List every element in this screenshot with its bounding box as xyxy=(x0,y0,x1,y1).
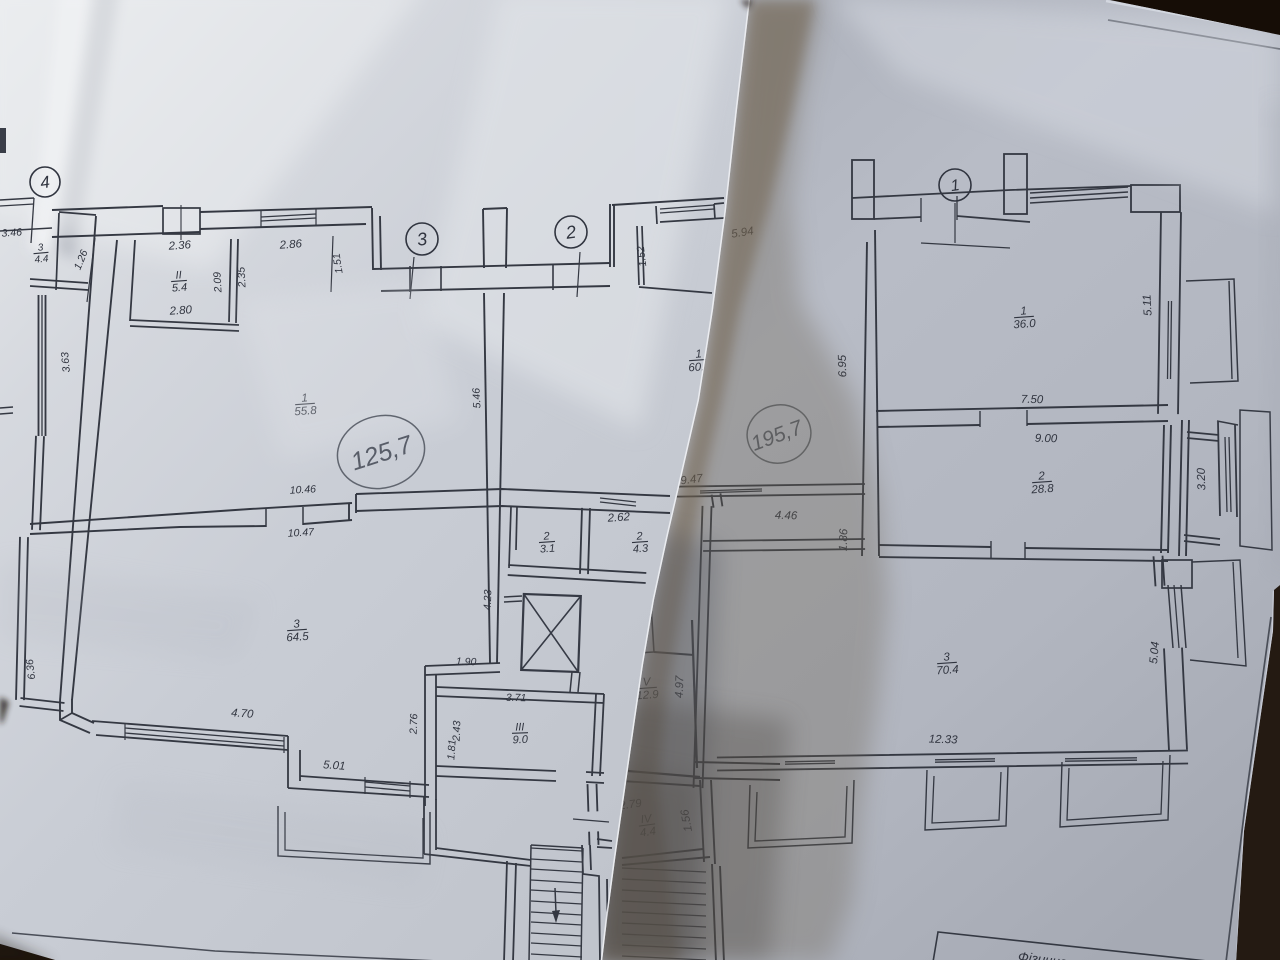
svg-text:28.8: 28.8 xyxy=(1030,483,1055,497)
svg-text:2: 2 xyxy=(635,530,643,542)
svg-text:3.46: 3.46 xyxy=(1,226,22,239)
svg-text:2.43: 2.43 xyxy=(451,720,464,742)
svg-text:2: 2 xyxy=(542,530,550,542)
svg-text:1.52: 1.52 xyxy=(635,245,649,267)
svg-text:70.4: 70.4 xyxy=(936,664,959,678)
svg-text:2.86: 2.86 xyxy=(278,238,303,252)
svg-text:3.20: 3.20 xyxy=(1196,467,1209,490)
svg-text:2.80: 2.80 xyxy=(168,304,193,318)
svg-text:3.71: 3.71 xyxy=(506,692,527,704)
svg-text:1: 1 xyxy=(695,348,702,360)
svg-text:5.01: 5.01 xyxy=(323,759,346,773)
svg-text:9.00: 9.00 xyxy=(1035,433,1058,445)
svg-text:2.62: 2.62 xyxy=(606,511,631,525)
svg-text:10.47: 10.47 xyxy=(287,526,315,539)
svg-text:2.09: 2.09 xyxy=(211,271,224,293)
svg-text:5.46: 5.46 xyxy=(470,387,483,408)
svg-text:4.4: 4.4 xyxy=(34,254,49,266)
svg-text:2.35: 2.35 xyxy=(235,266,248,288)
svg-text:II: II xyxy=(175,269,182,281)
svg-text:III: III xyxy=(515,721,525,733)
svg-text:3.63: 3.63 xyxy=(59,351,73,373)
svg-text:1.90: 1.90 xyxy=(456,656,477,669)
svg-text:4.3: 4.3 xyxy=(632,543,649,556)
svg-text:9.0: 9.0 xyxy=(512,734,529,747)
svg-text:6.36: 6.36 xyxy=(24,658,38,680)
svg-text:5.4: 5.4 xyxy=(171,282,187,295)
svg-text:1: 1 xyxy=(1020,305,1027,317)
svg-text:5.11: 5.11 xyxy=(1141,294,1154,316)
svg-text:4.70: 4.70 xyxy=(231,707,255,721)
svg-text:1.81: 1.81 xyxy=(445,739,458,760)
svg-text:64.5: 64.5 xyxy=(286,631,310,645)
svg-text:10.46: 10.46 xyxy=(289,483,316,496)
svg-text:2: 2 xyxy=(1037,470,1046,483)
svg-text:2.76: 2.76 xyxy=(408,713,421,735)
svg-text:12.33: 12.33 xyxy=(929,734,959,747)
svg-text:2.36: 2.36 xyxy=(167,239,192,253)
svg-text:3.1: 3.1 xyxy=(539,543,555,556)
svg-text:7.50: 7.50 xyxy=(1021,394,1044,406)
svg-text:36.0: 36.0 xyxy=(1013,318,1037,332)
svg-text:5.04: 5.04 xyxy=(1148,641,1162,664)
svg-text:4.23: 4.23 xyxy=(482,589,495,610)
